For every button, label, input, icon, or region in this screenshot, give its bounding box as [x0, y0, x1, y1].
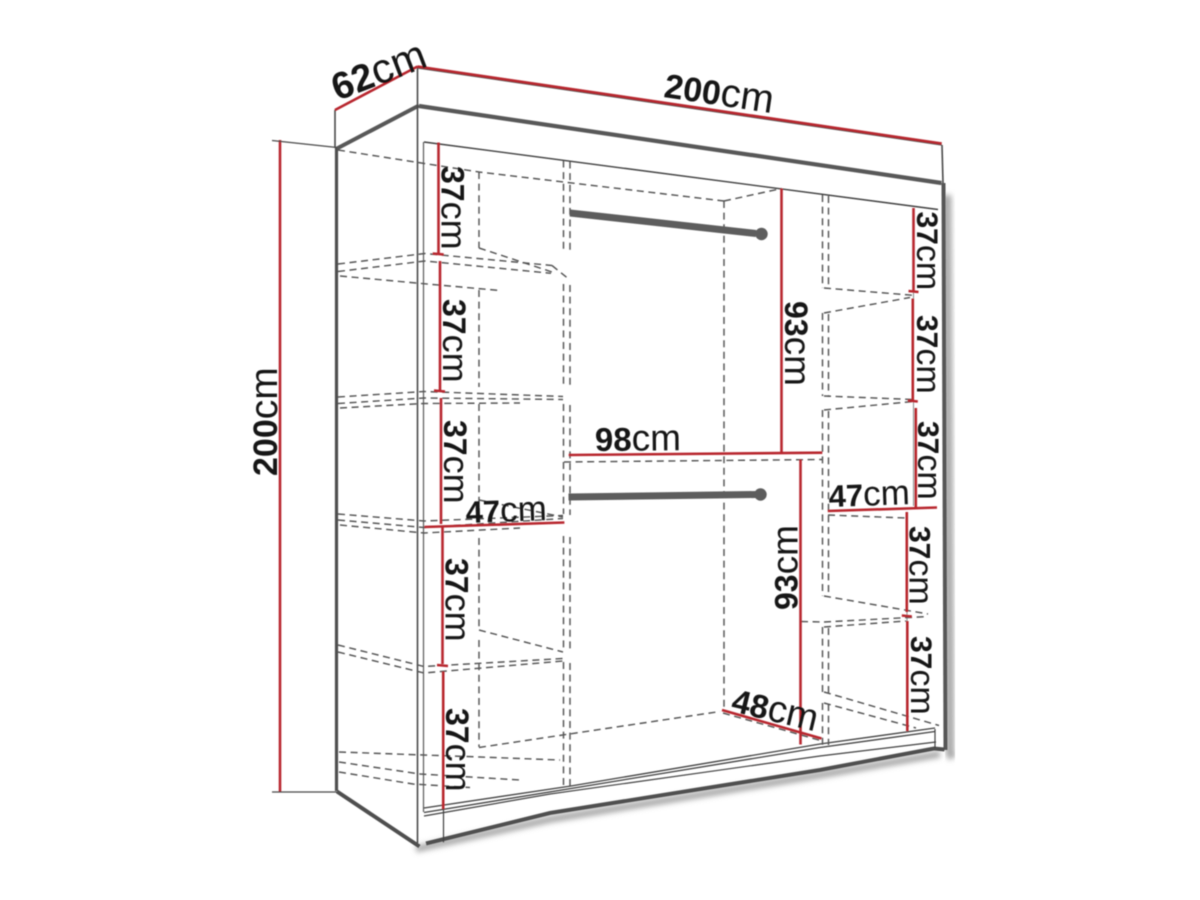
svg-text:93cm: 93cm: [765, 525, 806, 610]
svg-text:47cm: 47cm: [828, 473, 910, 515]
svg-text:37cm: 37cm: [909, 315, 947, 394]
svg-text:37cm: 37cm: [434, 166, 475, 250]
svg-text:37cm: 37cm: [438, 708, 479, 792]
svg-text:98cm: 98cm: [595, 417, 681, 459]
svg-text:37cm: 37cm: [903, 636, 941, 715]
svg-text:37cm: 37cm: [435, 299, 476, 383]
svg-text:93cm: 93cm: [777, 301, 818, 386]
svg-text:47cm: 47cm: [465, 489, 547, 531]
svg-text:37cm: 37cm: [902, 526, 940, 605]
svg-text:200cm: 200cm: [243, 367, 286, 476]
svg-text:37cm: 37cm: [436, 420, 477, 504]
svg-text:37cm: 37cm: [909, 212, 947, 291]
svg-text:37cm: 37cm: [910, 421, 948, 500]
svg-text:37cm: 37cm: [438, 558, 479, 642]
